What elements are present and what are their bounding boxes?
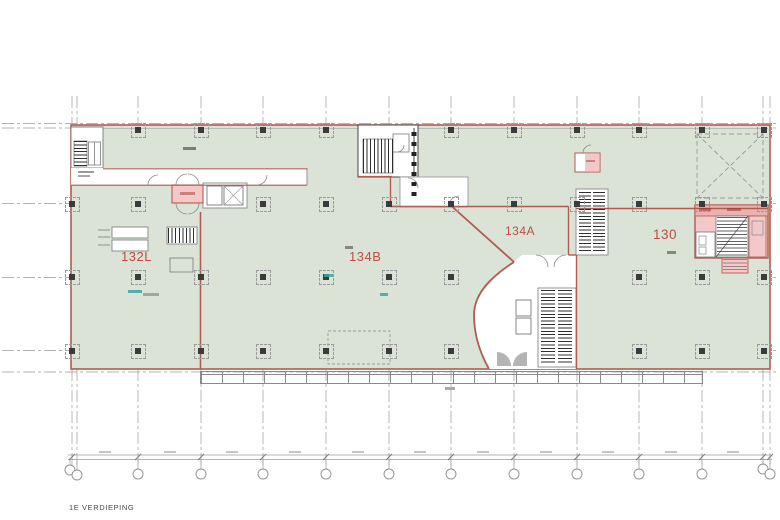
room-label-134a: 134A	[505, 224, 535, 238]
room-label-130: 130	[653, 227, 677, 242]
stair-hatch	[363, 139, 393, 173]
room-label-134b: 134B	[349, 249, 381, 264]
column-marker	[131, 344, 146, 359]
tiny-annotation	[143, 293, 159, 296]
dimension-line	[68, 454, 773, 460]
column-marker	[570, 123, 585, 138]
plan-drawing	[0, 0, 780, 520]
column-marker	[194, 123, 209, 138]
tiny-annotation	[78, 175, 90, 177]
column-marker	[757, 344, 772, 359]
mullion-square	[412, 182, 417, 186]
mullion-square	[412, 172, 417, 176]
dimension-figure	[352, 451, 364, 453]
dimension-figure	[226, 451, 238, 453]
column-marker	[256, 197, 271, 212]
tiny-annotation	[324, 274, 333, 277]
dimension-figure	[665, 451, 677, 453]
column-marker	[444, 270, 459, 285]
grid-bubble	[133, 469, 143, 479]
escalator-hatch	[558, 290, 572, 365]
column-marker	[131, 123, 146, 138]
dimension-figure	[477, 451, 489, 453]
grid-bubble	[572, 469, 582, 479]
grid-bubble	[697, 469, 707, 479]
tiny-annotation	[699, 208, 711, 211]
column-marker	[131, 270, 146, 285]
stair-hatch	[723, 259, 747, 272]
grid-bubble	[384, 469, 394, 479]
mullion-square	[412, 132, 417, 136]
grid-bubble	[258, 469, 268, 479]
mullion-square	[412, 152, 417, 156]
column-marker	[194, 270, 209, 285]
dimension-figure	[727, 451, 739, 453]
column-marker	[194, 344, 209, 359]
tiny-annotation	[78, 171, 94, 173]
corridor	[71, 168, 307, 185]
grid-bubble	[765, 469, 775, 479]
column-marker	[632, 123, 647, 138]
canopy-strip	[200, 371, 703, 384]
column-marker	[695, 344, 710, 359]
column-marker	[695, 123, 710, 138]
column-marker	[256, 344, 271, 359]
tiny-annotation	[380, 293, 388, 296]
column-marker	[757, 123, 772, 138]
column-marker	[131, 197, 146, 212]
tiny-annotation	[445, 387, 455, 390]
column-marker	[319, 270, 334, 285]
dimension-figure	[414, 451, 426, 453]
tiny-annotation	[586, 160, 595, 162]
column-marker	[632, 344, 647, 359]
dimension-figure	[164, 451, 176, 453]
column-marker	[256, 270, 271, 285]
column-marker	[382, 197, 397, 212]
grid-bubble	[72, 470, 82, 480]
grid-bubbles	[65, 460, 775, 480]
stair-hatch	[74, 141, 87, 166]
column-marker	[444, 344, 459, 359]
column-marker	[632, 270, 647, 285]
room-label-132l: 132L	[121, 249, 152, 264]
tiny-annotation	[180, 192, 195, 195]
grid-bubble	[196, 469, 206, 479]
tiny-annotation	[667, 251, 676, 254]
column-marker	[632, 197, 647, 212]
mullion-square	[412, 192, 417, 196]
column-marker	[319, 197, 334, 212]
column-marker	[65, 270, 80, 285]
column-marker	[757, 270, 772, 285]
column-marker	[319, 123, 334, 138]
column-marker	[65, 197, 80, 212]
escalator-hatch	[593, 192, 605, 252]
tiny-annotation	[727, 208, 741, 211]
column-marker	[65, 344, 80, 359]
mullion-square	[412, 162, 417, 166]
grid-bubble	[446, 469, 456, 479]
tiny-annotation	[183, 147, 196, 150]
tiny-annotation	[128, 290, 142, 293]
plan-title: 1E VERDIEPING	[69, 503, 134, 512]
mullion-square	[412, 142, 417, 146]
column-marker	[256, 123, 271, 138]
grid-bubble	[634, 469, 644, 479]
stair-hatch	[717, 217, 747, 256]
grid-bubble	[321, 469, 331, 479]
dimension-figure	[602, 451, 614, 453]
column-marker	[570, 197, 585, 212]
column-marker	[507, 197, 522, 212]
column-marker	[319, 344, 334, 359]
building-footprint	[71, 125, 770, 369]
dimension-figure	[540, 451, 552, 453]
column-marker	[444, 123, 459, 138]
dimension-figure	[289, 451, 301, 453]
column-marker	[507, 123, 522, 138]
escalator-hatch	[541, 290, 555, 365]
floorplan-canvas: 132L 134B 134A 130 1E VERDIEPING	[0, 0, 780, 520]
stair-hatch	[168, 228, 196, 243]
column-marker	[757, 197, 772, 212]
dimension-figure	[99, 451, 111, 453]
column-marker	[444, 197, 459, 212]
column-marker	[382, 344, 397, 359]
grid-bubble	[509, 469, 519, 479]
column-marker	[695, 270, 710, 285]
column-marker	[382, 270, 397, 285]
